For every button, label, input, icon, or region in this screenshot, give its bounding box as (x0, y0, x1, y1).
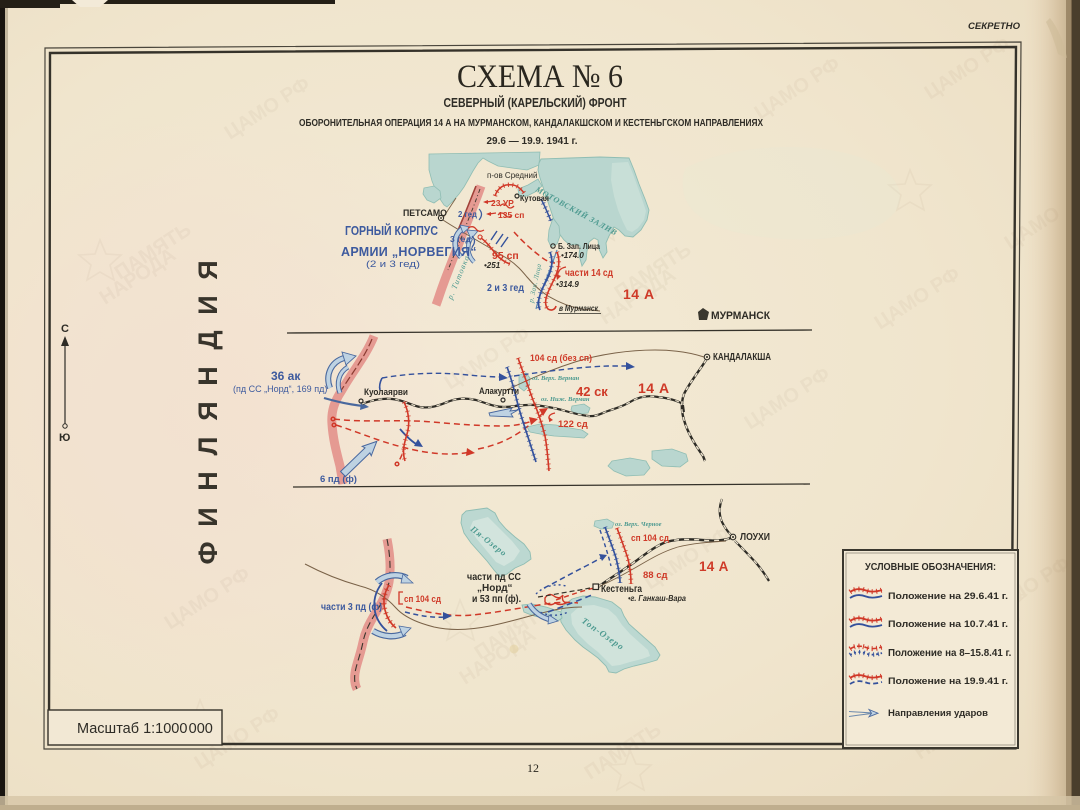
svg-text:14 А: 14 А (623, 286, 655, 302)
svg-text:104 сд (без сп): 104 сд (без сп) (530, 353, 592, 364)
svg-text:Ю: Ю (59, 432, 70, 444)
svg-text:С: С (61, 323, 69, 335)
svg-text:И: И (193, 507, 223, 526)
svg-text:•251: •251 (484, 261, 501, 270)
svg-text:14 А: 14 А (699, 559, 729, 574)
svg-text:Кутовая: Кутовая (520, 193, 549, 203)
svg-text:И: И (193, 295, 223, 314)
svg-text:СЕВЕРНЫЙ (КАРЕЛЬСКИЙ) ФРОНТ: СЕВЕРНЫЙ (КАРЕЛЬСКИЙ) ФРОНТ (444, 95, 627, 110)
svg-text:Положение на 8–15.8.41 г.: Положение на 8–15.8.41 г. (888, 648, 1012, 659)
svg-text:2 гед: 2 гед (458, 209, 478, 219)
svg-text:(2 и 3 гед): (2 и 3 гед) (366, 259, 420, 270)
svg-text:Б. Зап. Лица: Б. Зап. Лица (558, 241, 600, 251)
svg-text:МУРМАНСК: МУРМАНСК (711, 310, 770, 322)
svg-text:СЕКРЕТНО: СЕКРЕТНО (968, 21, 1021, 32)
svg-text:36 ак: 36 ак (271, 369, 301, 383)
svg-text:Я: Я (193, 401, 223, 420)
svg-text:ГОРНЫЙ КОРПУС: ГОРНЫЙ КОРПУС (345, 223, 438, 238)
svg-text:122 сд: 122 сд (558, 419, 588, 430)
svg-text:ПЕТСАМО: ПЕТСАМО (403, 208, 447, 219)
svg-text:Положение на 29.6.41 г.: Положение на 29.6.41 г. (888, 591, 1008, 601)
svg-text:Алакуртти: Алакуртти (479, 386, 519, 397)
svg-text:•314.9: •314.9 (556, 280, 579, 289)
svg-text:Я: Я (193, 260, 223, 279)
svg-text:ОБОРОНИТЕЛЬНАЯ ОПЕРАЦИЯ 14 А Н: ОБОРОНИТЕЛЬНАЯ ОПЕРАЦИЯ 14 А НА МУРМАНСК… (299, 118, 763, 129)
svg-text:•г. Ганкаш-Вара: •г. Ганкаш-Вара (628, 594, 687, 603)
svg-text:сп 104 сд: сп 104 сд (404, 594, 441, 605)
svg-text:Д: Д (193, 330, 223, 349)
svg-text:УСЛОВНЫЕ ОБОЗНАЧЕНИЯ:: УСЛОВНЫЕ ОБОЗНАЧЕНИЯ: (865, 561, 996, 573)
svg-text:Л: Л (193, 437, 223, 456)
svg-text:оз. Верх. Верман: оз. Верх. Верман (532, 375, 580, 382)
svg-text:„Норд“: „Норд“ (477, 583, 513, 594)
svg-text:Направления ударов: Направления ударов (888, 708, 988, 718)
svg-text:42 ск: 42 ск (576, 384, 608, 399)
svg-text:23 УР: 23 УР (491, 198, 514, 208)
svg-text:ЛОУХИ: ЛОУХИ (740, 531, 770, 543)
svg-text:Положение на 19.9.41 г.: Положение на 19.9.41 г. (888, 676, 1008, 686)
svg-text:и 53 пп (ф).: и 53 пп (ф). (472, 593, 521, 605)
svg-text:6 пд (ф): 6 пд (ф) (320, 474, 357, 485)
svg-text:Куолаярви: Куолаярви (364, 387, 408, 398)
svg-text:29.6 — 19.9. 1941 г.: 29.6 — 19.9. 1941 г. (486, 136, 577, 147)
svg-text:Н: Н (193, 471, 223, 491)
svg-text:Н: Н (193, 366, 223, 386)
svg-text:части 3 пд (ф): части 3 пд (ф) (321, 601, 382, 613)
svg-text:СХЕМА № 6: СХЕМА № 6 (457, 59, 623, 95)
svg-text:12: 12 (527, 761, 539, 775)
svg-text:в Мурманск: в Мурманск (559, 303, 599, 313)
svg-text:сп 104 сд: сп 104 сд (631, 533, 669, 544)
svg-text:2 и 3 гед: 2 и 3 гед (487, 283, 525, 294)
svg-text:Положение на 10.7.41 г.: Положение на 10.7.41 г. (888, 619, 1008, 629)
svg-text:КАНДАЛАКША: КАНДАЛАКША (713, 352, 771, 363)
svg-text:части 14 сд: части 14 сд (565, 268, 614, 279)
svg-text:п-ов Средний: п-ов Средний (487, 171, 537, 180)
svg-text:Масштаб 1:1000 000: Масштаб 1:1000 000 (77, 721, 213, 737)
svg-text:135 сп: 135 сп (498, 210, 524, 220)
svg-text:Ф: Ф (193, 541, 223, 564)
svg-text:•174.0: •174.0 (561, 251, 584, 260)
svg-text:14 А: 14 А (638, 380, 670, 396)
svg-text:88 сд: 88 сд (643, 570, 668, 581)
svg-text:оз. Верх. Черное: оз. Верх. Черное (615, 521, 662, 528)
svg-text:95 сп: 95 сп (492, 250, 519, 262)
svg-text:(пд СС „Норд“, 169 пд): (пд СС „Норд“, 169 пд) (233, 384, 327, 394)
svg-text:части пд СС: части пд СС (467, 572, 521, 583)
svg-text:3 гед: 3 гед (450, 234, 471, 244)
svg-text:АРМИИ „НОРВЕГИЯ“: АРМИИ „НОРВЕГИЯ“ (341, 245, 477, 259)
